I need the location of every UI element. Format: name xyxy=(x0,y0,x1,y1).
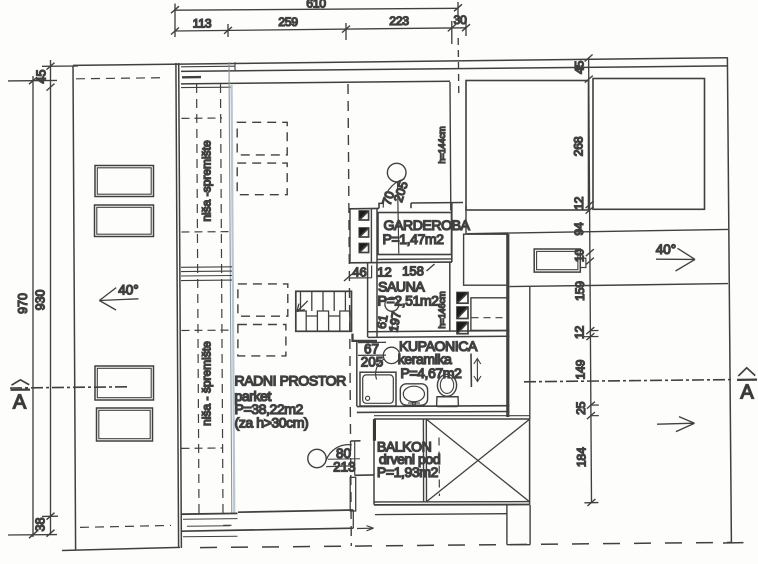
svg-text:RADNI PROSTOR: RADNI PROSTOR xyxy=(235,373,347,389)
svg-text:610: 610 xyxy=(306,0,326,11)
svg-text:38: 38 xyxy=(34,518,48,532)
svg-text:46: 46 xyxy=(352,264,366,279)
svg-text:158: 158 xyxy=(402,263,424,278)
svg-text:40°: 40° xyxy=(118,283,138,298)
svg-text:268: 268 xyxy=(572,136,586,156)
svg-text:259: 259 xyxy=(278,15,298,29)
svg-text:P=4,67m2: P=4,67m2 xyxy=(400,365,462,381)
svg-text:159: 159 xyxy=(573,281,587,301)
svg-text:P=1,93m2: P=1,93m2 xyxy=(377,464,439,480)
svg-text:223: 223 xyxy=(389,14,409,28)
svg-text:970: 970 xyxy=(16,293,30,314)
svg-text:40°: 40° xyxy=(656,242,676,257)
svg-text:30: 30 xyxy=(453,13,467,27)
svg-text:A: A xyxy=(13,392,27,414)
svg-text:213: 213 xyxy=(333,459,356,474)
svg-text:niša -spremište: niša -spremište xyxy=(200,140,214,222)
svg-text:(za h>30cm): (za h>30cm) xyxy=(235,415,309,431)
svg-text:149: 149 xyxy=(574,359,588,379)
svg-text:45: 45 xyxy=(35,70,49,84)
svg-text:184: 184 xyxy=(574,447,588,467)
svg-text:h=144cm: h=144cm xyxy=(437,126,447,163)
svg-text:197: 197 xyxy=(386,310,403,333)
svg-text:113: 113 xyxy=(193,17,212,31)
svg-text:12: 12 xyxy=(572,196,586,210)
svg-text:12: 12 xyxy=(573,326,587,340)
svg-text:12: 12 xyxy=(377,264,391,279)
svg-text:25: 25 xyxy=(574,401,588,415)
svg-text:94: 94 xyxy=(572,222,586,236)
svg-text:niša - špremište: niša - špremište xyxy=(200,341,214,426)
svg-text:A: A xyxy=(740,382,754,404)
svg-text:930: 930 xyxy=(34,290,48,311)
svg-text:P=1,47m2: P=1,47m2 xyxy=(383,231,445,247)
